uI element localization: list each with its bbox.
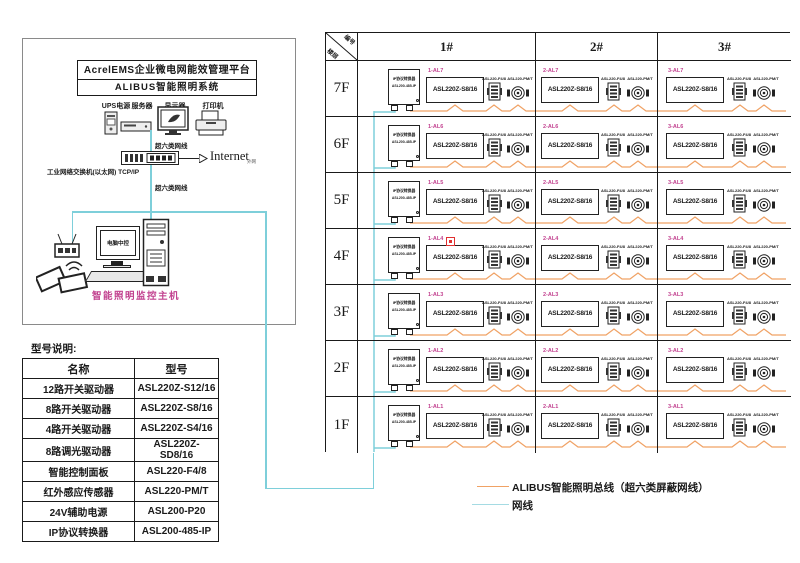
pir-sensor-icon bbox=[507, 197, 529, 213]
sensor-model-label: ASL220-PM/T bbox=[506, 76, 534, 81]
sensor-model-label: ASL220-PM/T bbox=[752, 132, 780, 137]
switch-driver-box: ASL220Z-S8/16 bbox=[541, 245, 599, 271]
sensor-model-label: ASL220-PM/T bbox=[752, 300, 780, 305]
ip-port-dot bbox=[416, 379, 419, 382]
table-row: 8路开关驱动器ASL220Z-S8/16 bbox=[23, 399, 219, 419]
grid-cell: IP协议转换器ASL200-485-IP1-AL7ASL220Z-S8/16AS… bbox=[358, 61, 536, 117]
sensor-model-label: ASL220-PM/T bbox=[626, 412, 654, 417]
legend-bus-line bbox=[477, 486, 509, 487]
switch-driver-box: ASL220Z-S8/16 bbox=[426, 301, 484, 327]
device-model-cell: ASL220Z-S4/16 bbox=[135, 419, 219, 439]
ip-connector bbox=[391, 217, 398, 223]
column-header-2: 2# bbox=[536, 33, 658, 61]
device-model-cell: ASL220Z-SD8/16 bbox=[135, 439, 219, 462]
grid-cell: 3-AL5ASL220Z-S8/16ASL220-F4/8ASL220-PM/T bbox=[658, 173, 791, 229]
switch-driver-box: ASL220Z-S8/16 bbox=[666, 301, 724, 327]
pir-sensor-icon bbox=[753, 253, 775, 269]
pir-sensor-icon bbox=[627, 85, 649, 101]
switch-driver-box: ASL220Z-S8/16 bbox=[541, 357, 599, 383]
pir-sensor-icon bbox=[507, 253, 529, 269]
panel-model-label: ASL220-F4/8 bbox=[725, 244, 753, 249]
panel-model-label: ASL220-F4/8 bbox=[599, 412, 627, 417]
column-header-1: 1# bbox=[358, 33, 536, 61]
ip-connector bbox=[406, 273, 413, 279]
panel-model-label: ASL220-F4/8 bbox=[480, 300, 508, 305]
panel-model-label: ASL220-F4/8 bbox=[599, 244, 627, 249]
circuit-label: 3-AL5 bbox=[668, 180, 683, 186]
panel-model-label: ASL220-F4/8 bbox=[725, 76, 753, 81]
switch-driver-box: ASL220Z-S8/16 bbox=[426, 189, 484, 215]
grid-corner-cell: 编号楼层 bbox=[326, 33, 358, 61]
panel-model-label: ASL220-F4/8 bbox=[599, 188, 627, 193]
network-line-server-switch bbox=[150, 130, 152, 152]
table-row: 智能控制面板ASL220-F4/8 bbox=[23, 462, 219, 482]
table-row: 12路开关驱动器ASL220Z-S12/16 bbox=[23, 379, 219, 399]
ip-port-dot bbox=[416, 435, 419, 438]
grid-cell: 3-AL1ASL220Z-S8/16ASL220-F4/8ASL220-PM/T bbox=[658, 397, 791, 453]
switch-driver-box: ASL220Z-S8/16 bbox=[666, 413, 724, 439]
circuit-label: 1-AL2 bbox=[428, 348, 443, 354]
circuit-label: 3-AL6 bbox=[668, 124, 683, 130]
panel-model-label: ASL220-F4/8 bbox=[480, 188, 508, 193]
panel-model-label: ASL220-F4/8 bbox=[725, 132, 753, 137]
ip-port-dot bbox=[416, 267, 419, 270]
ip-connector bbox=[391, 273, 398, 279]
legend-net-label: 网线 bbox=[512, 498, 533, 513]
floor-label-5F: 5F bbox=[326, 173, 358, 229]
ip-connector bbox=[391, 385, 398, 391]
arrow-right-icon bbox=[199, 154, 208, 163]
table-row: 8路调光驱动器ASL220Z-SD8/16 bbox=[23, 439, 219, 462]
control-panel-icon bbox=[605, 250, 622, 269]
grid-cell: 3-AL4ASL220Z-S8/16ASL220-F4/8ASL220-PM/T bbox=[658, 229, 791, 285]
network-line-riser-grid bbox=[373, 450, 375, 489]
grid-cell: 3-AL3ASL220Z-S8/16ASL220-F4/8ASL220-PM/T bbox=[658, 285, 791, 341]
circuit-label: 3-AL2 bbox=[668, 348, 683, 354]
floor-label-6F: 6F bbox=[326, 117, 358, 173]
panel-model-label: ASL220-F4/8 bbox=[480, 412, 508, 417]
control-panel-icon bbox=[486, 250, 503, 269]
riser-grid: 编号楼层1#2#3#7FIP协议转换器ASL200-485-IP1-AL7ASL… bbox=[325, 32, 790, 452]
grid-cell: IP协议转换器ASL200-485-IP1-AL2ASL220Z-S8/16AS… bbox=[358, 341, 536, 397]
device-name-cell: 24V辅助电源 bbox=[23, 502, 135, 522]
control-panel-icon bbox=[605, 82, 622, 101]
circuit-label: 2-AL5 bbox=[543, 180, 558, 186]
selection-marker bbox=[446, 237, 455, 246]
grid-cell: 3-AL2ASL220Z-S8/16ASL220-F4/8ASL220-PM/T bbox=[658, 341, 791, 397]
ip-converter-model: ASL200-485-IP bbox=[389, 84, 419, 88]
control-panel-icon bbox=[731, 82, 748, 101]
control-panel-icon bbox=[486, 306, 503, 325]
ethernet-switch-icon bbox=[121, 151, 179, 165]
internet-note: 外网 bbox=[247, 159, 256, 165]
floor-label-2F: 2F bbox=[326, 341, 358, 397]
panel-model-label: ASL220-F4/8 bbox=[725, 412, 753, 417]
switch-driver-box: ASL220Z-S8/16 bbox=[541, 77, 599, 103]
grid-cell: IP协议转换器ASL200-485-IP1-AL5ASL220Z-S8/16AS… bbox=[358, 173, 536, 229]
mobile-cards-icon bbox=[36, 254, 96, 294]
sensor-model-label: ASL220-PM/T bbox=[506, 412, 534, 417]
switch-driver-box: ASL220Z-S8/16 bbox=[426, 245, 484, 271]
pir-sensor-icon bbox=[507, 141, 529, 157]
control-panel-icon bbox=[731, 418, 748, 437]
model-table-title: 型号说明: bbox=[31, 341, 77, 356]
switch-driver-box: ASL220Z-S8/16 bbox=[666, 189, 724, 215]
network-line-horizontal bbox=[72, 211, 267, 213]
circuit-label: 1-AL3 bbox=[428, 292, 443, 298]
alibus-lighting-system-diagram: AcrelEMS企业微电网能效管理平台 ALIBUS智能照明系统 UPS电源 服… bbox=[0, 0, 800, 563]
sensor-model-label: ASL220-PM/T bbox=[506, 244, 534, 249]
ip-connector bbox=[406, 329, 413, 335]
ip-connector bbox=[406, 385, 413, 391]
device-name-cell: 智能控制面板 bbox=[23, 462, 135, 482]
sensor-model-label: ASL220-PM/T bbox=[626, 76, 654, 81]
ip-converter-name: IP协议转换器 bbox=[389, 301, 419, 306]
device-model-cell: ASL200-P20 bbox=[135, 502, 219, 522]
sensor-model-label: ASL220-PM/T bbox=[506, 356, 534, 361]
control-panel-icon bbox=[486, 194, 503, 213]
grid-cell: 2-AL2ASL220Z-S8/16ASL220-F4/8ASL220-PM/T bbox=[536, 341, 658, 397]
circuit-label: 3-AL4 bbox=[668, 236, 683, 242]
ip-port-dot bbox=[416, 155, 419, 158]
grid-cell: 2-AL4ASL220Z-S8/16ASL220-F4/8ASL220-PM/T bbox=[536, 229, 658, 285]
grid-cell: 2-AL3ASL220Z-S8/16ASL220-F4/8ASL220-PM/T bbox=[536, 285, 658, 341]
circuit-label: 3-AL3 bbox=[668, 292, 683, 298]
sensor-model-label: ASL220-PM/T bbox=[626, 188, 654, 193]
device-model-cell: ASL200-485-IP bbox=[135, 522, 219, 542]
device-model-cell: ASL220-F4/8 bbox=[135, 462, 219, 482]
internet-label: Internet bbox=[210, 149, 249, 164]
header-model: 型号 bbox=[135, 359, 219, 379]
sensor-model-label: ASL220-PM/T bbox=[752, 412, 780, 417]
network-line-bottom bbox=[265, 488, 374, 490]
pir-sensor-icon bbox=[507, 309, 529, 325]
panel-model-label: ASL220-F4/8 bbox=[599, 76, 627, 81]
table-row: 红外感应传感器ASL220-PM/T bbox=[23, 482, 219, 502]
ip-converter-name: IP协议转换器 bbox=[389, 245, 419, 250]
ip-connector bbox=[406, 161, 413, 167]
sensor-model-label: ASL220-PM/T bbox=[752, 188, 780, 193]
circuit-label: 1-AL1 bbox=[428, 404, 443, 410]
legend-bus-label: ALIBUS智能照明总线（超六类屏蔽网线） bbox=[512, 480, 709, 495]
pir-sensor-icon bbox=[753, 365, 775, 381]
pir-sensor-icon bbox=[627, 141, 649, 157]
circuit-label: 2-AL6 bbox=[543, 124, 558, 130]
circuit-label: 1-AL7 bbox=[428, 68, 443, 74]
host-label: 智能照明监控主机 bbox=[92, 288, 180, 302]
grid-cell: IP协议转换器ASL200-485-IP1-AL3ASL220Z-S8/16AS… bbox=[358, 285, 536, 341]
ip-converter-model: ASL200-485-IP bbox=[389, 308, 419, 312]
panel-model-label: ASL220-F4/8 bbox=[599, 300, 627, 305]
circuit-label: 2-AL7 bbox=[543, 68, 558, 74]
network-line-riser-left bbox=[265, 211, 267, 489]
panel-model-label: ASL220-F4/8 bbox=[725, 356, 753, 361]
floor-label-3F: 3F bbox=[326, 285, 358, 341]
floor-label-4F: 4F bbox=[326, 229, 358, 285]
host-monitor-icon: 电脑中控 bbox=[96, 226, 140, 260]
circuit-label: 3-AL1 bbox=[668, 404, 683, 410]
panel-model-label: ASL220-F4/8 bbox=[480, 356, 508, 361]
table-row: 24V辅助电源ASL200-P20 bbox=[23, 502, 219, 522]
switch-driver-box: ASL220Z-S8/16 bbox=[426, 133, 484, 159]
circuit-label: 2-AL2 bbox=[543, 348, 558, 354]
legend-net-line bbox=[472, 504, 509, 505]
sensor-model-label: ASL220-PM/T bbox=[626, 132, 654, 137]
sensor-model-label: ASL220-PM/T bbox=[752, 76, 780, 81]
system-title: ALIBUS智能照明系统 bbox=[78, 80, 256, 96]
ip-converter-name: IP协议转换器 bbox=[389, 189, 419, 194]
ip-converter-model: ASL200-485-IP bbox=[389, 196, 419, 200]
control-panel-icon bbox=[605, 138, 622, 157]
ip-port-dot bbox=[416, 323, 419, 326]
cable-label-bottom: 超六类网线 bbox=[155, 182, 188, 192]
device-name-cell: IP协议转换器 bbox=[23, 522, 135, 542]
ip-port-dot bbox=[416, 211, 419, 214]
table-row: 4路开关驱动器ASL220Z-S4/16 bbox=[23, 419, 219, 439]
ip-port-dot bbox=[416, 99, 419, 102]
ip-converter-model: ASL200-485-IP bbox=[389, 420, 419, 424]
column-header-3: 3# bbox=[658, 33, 791, 61]
switch-driver-box: ASL220Z-S8/16 bbox=[666, 357, 724, 383]
pir-sensor-icon bbox=[753, 309, 775, 325]
pir-sensor-icon bbox=[627, 365, 649, 381]
control-panel-icon bbox=[486, 362, 503, 381]
monitor-icon bbox=[156, 106, 190, 138]
sensor-model-label: ASL220-PM/T bbox=[752, 356, 780, 361]
host-screen-label: 电脑中控 bbox=[100, 230, 136, 256]
circuit-label: 2-AL4 bbox=[543, 236, 558, 242]
pir-sensor-icon bbox=[753, 141, 775, 157]
control-panel-icon bbox=[731, 250, 748, 269]
pir-sensor-icon bbox=[507, 421, 529, 437]
ip-converter-name: IP协议转换器 bbox=[389, 133, 419, 138]
circuit-label: 2-AL1 bbox=[543, 404, 558, 410]
pir-sensor-icon bbox=[753, 85, 775, 101]
grid-cell: 2-AL6ASL220Z-S8/16ASL220-F4/8ASL220-PM/T bbox=[536, 117, 658, 173]
circuit-label: 1-AL5 bbox=[428, 180, 443, 186]
grid-cell: 3-AL6ASL220Z-S8/16ASL220-F4/8ASL220-PM/T bbox=[658, 117, 791, 173]
switch-driver-box: ASL220Z-S8/16 bbox=[426, 357, 484, 383]
server-icon bbox=[120, 118, 152, 134]
floor-label-7F: 7F bbox=[326, 61, 358, 117]
switch-driver-box: ASL220Z-S8/16 bbox=[666, 77, 724, 103]
control-panel-icon bbox=[731, 138, 748, 157]
switch-driver-box: ASL220Z-S8/16 bbox=[541, 301, 599, 327]
ip-connector bbox=[391, 329, 398, 335]
ip-connector bbox=[406, 441, 413, 447]
keyboard-icon bbox=[85, 271, 149, 282]
control-panel-icon bbox=[486, 418, 503, 437]
sensor-model-label: ASL220-PM/T bbox=[506, 188, 534, 193]
device-name-cell: 8路开关驱动器 bbox=[23, 399, 135, 419]
control-panel-icon bbox=[731, 194, 748, 213]
monitor-base bbox=[103, 265, 131, 268]
switch-driver-box: ASL220Z-S8/16 bbox=[426, 413, 484, 439]
grid-cell: IP协议转换器ASL200-485-IP1-AL1ASL220Z-S8/16AS… bbox=[358, 397, 536, 453]
switch-driver-box: ASL220Z-S8/16 bbox=[666, 133, 724, 159]
device-model-cell: ASL220Z-S8/16 bbox=[135, 399, 219, 419]
pir-sensor-icon bbox=[627, 421, 649, 437]
circuit-label: 1-AL6 bbox=[428, 124, 443, 130]
ip-connector bbox=[391, 161, 398, 167]
circuit-label: 2-AL3 bbox=[543, 292, 558, 298]
control-panel-icon bbox=[486, 82, 503, 101]
pc-tower-icon bbox=[142, 218, 170, 288]
ip-connector bbox=[406, 217, 413, 223]
sensor-model-label: ASL220-PM/T bbox=[626, 356, 654, 361]
panel-model-label: ASL220-F4/8 bbox=[480, 76, 508, 81]
panel-model-label: ASL220-F4/8 bbox=[725, 300, 753, 305]
pir-sensor-icon bbox=[627, 253, 649, 269]
ip-converter-name: IP协议转换器 bbox=[389, 77, 419, 82]
ip-converter-model: ASL200-485-IP bbox=[389, 140, 419, 144]
pir-sensor-icon bbox=[627, 309, 649, 325]
table-row: IP协议转换器ASL200-485-IP bbox=[23, 522, 219, 542]
platform-title: AcrelEMS企业微电网能效管理平台 bbox=[78, 61, 256, 80]
sensor-model-label: ASL220-PM/T bbox=[506, 132, 534, 137]
grid-cell: 2-AL7ASL220Z-S8/16ASL220-F4/8ASL220-PM/T bbox=[536, 61, 658, 117]
table-header-row: 名称 型号 bbox=[23, 359, 219, 379]
switch-driver-box: ASL220Z-S8/16 bbox=[426, 77, 484, 103]
grid-cell: IP协议转换器ASL200-485-IP1-AL6ASL220Z-S8/16AS… bbox=[358, 117, 536, 173]
control-panel-icon bbox=[605, 362, 622, 381]
switch-driver-box: ASL220Z-S8/16 bbox=[541, 413, 599, 439]
sensor-model-label: ASL220-PM/T bbox=[626, 300, 654, 305]
pir-sensor-icon bbox=[627, 197, 649, 213]
ip-converter-model: ASL200-485-IP bbox=[389, 252, 419, 256]
device-name-cell: 8路调光驱动器 bbox=[23, 439, 135, 462]
control-panel-icon bbox=[605, 194, 622, 213]
sensor-model-label: ASL220-PM/T bbox=[752, 244, 780, 249]
ip-converter-model: ASL200-485-IP bbox=[389, 364, 419, 368]
switch-driver-box: ASL220Z-S8/16 bbox=[541, 189, 599, 215]
control-panel-icon bbox=[731, 306, 748, 325]
ip-connector bbox=[406, 105, 413, 111]
device-model-cell: ASL220Z-S12/16 bbox=[135, 379, 219, 399]
pir-sensor-icon bbox=[753, 197, 775, 213]
ip-connector bbox=[391, 441, 398, 447]
device-name-cell: 4路开关驱动器 bbox=[23, 419, 135, 439]
panel-model-label: ASL220-F4/8 bbox=[599, 356, 627, 361]
cable-label-top: 超六类网线 bbox=[155, 140, 188, 150]
control-panel-icon bbox=[731, 362, 748, 381]
switch-label: 工业网络交换机(以太网) TCP/IP bbox=[47, 166, 139, 176]
pir-sensor-icon bbox=[507, 85, 529, 101]
switch-driver-box: ASL220Z-S8/16 bbox=[666, 245, 724, 271]
panel-model-label: ASL220-F4/8 bbox=[599, 132, 627, 137]
panel-model-label: ASL220-F4/8 bbox=[725, 188, 753, 193]
model-table: 名称 型号 12路开关驱动器ASL220Z-S12/168路开关驱动器ASL22… bbox=[22, 358, 219, 542]
circuit-label: 1-AL4 bbox=[428, 236, 443, 242]
ups-icon bbox=[104, 110, 118, 136]
ip-converter-name: IP协议转换器 bbox=[389, 357, 419, 362]
ip-connector bbox=[391, 105, 398, 111]
header-name: 名称 bbox=[23, 359, 135, 379]
corner-label-number: 编号 bbox=[342, 32, 357, 47]
device-model-cell: ASL220-PM/T bbox=[135, 482, 219, 502]
printer-icon bbox=[194, 110, 228, 138]
floor-label-1F: 1F bbox=[326, 397, 358, 453]
panel-model-label: ASL220-F4/8 bbox=[480, 244, 508, 249]
pir-sensor-icon bbox=[753, 421, 775, 437]
network-line-switch-down bbox=[150, 165, 152, 212]
pir-sensor-icon bbox=[507, 365, 529, 381]
internet-link-line bbox=[179, 158, 199, 159]
grid-cell: 2-AL1ASL220Z-S8/16ASL220-F4/8ASL220-PM/T bbox=[536, 397, 658, 453]
corner-label-floor: 楼层 bbox=[326, 46, 341, 61]
ip-converter-name: IP协议转换器 bbox=[389, 413, 419, 418]
control-panel-icon bbox=[605, 418, 622, 437]
switch-driver-box: ASL220Z-S8/16 bbox=[541, 133, 599, 159]
control-panel-icon bbox=[486, 138, 503, 157]
sensor-model-label: ASL220-PM/T bbox=[626, 244, 654, 249]
grid-cell: 2-AL5ASL220Z-S8/16ASL220-F4/8ASL220-PM/T bbox=[536, 173, 658, 229]
sensor-model-label: ASL220-PM/T bbox=[506, 300, 534, 305]
platform-title-box: AcrelEMS企业微电网能效管理平台 ALIBUS智能照明系统 bbox=[77, 60, 257, 96]
control-panel-icon bbox=[605, 306, 622, 325]
circuit-label: 3-AL7 bbox=[668, 68, 683, 74]
panel-model-label: ASL220-F4/8 bbox=[480, 132, 508, 137]
device-name-cell: 红外感应传感器 bbox=[23, 482, 135, 502]
grid-cell: 3-AL7ASL220Z-S8/16ASL220-F4/8ASL220-PM/T bbox=[658, 61, 791, 117]
device-name-cell: 12路开关驱动器 bbox=[23, 379, 135, 399]
server-label: 服务器 bbox=[128, 101, 156, 111]
